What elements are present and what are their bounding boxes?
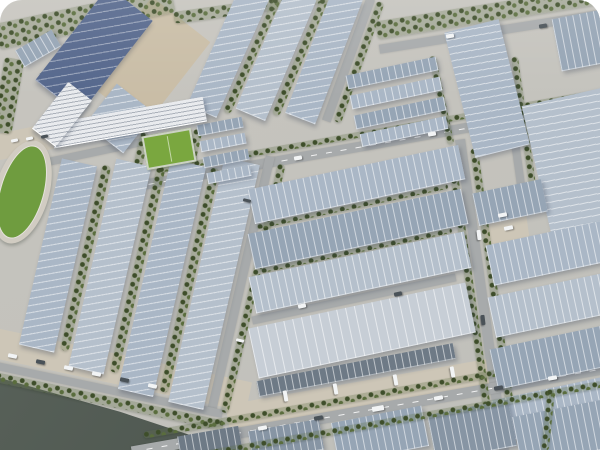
trees-left-edge xyxy=(0,56,24,133)
car xyxy=(25,136,32,140)
field-center-line xyxy=(167,136,172,161)
car xyxy=(539,23,548,28)
hall-right-0 xyxy=(472,179,547,226)
car xyxy=(10,138,17,142)
aerial-industrial-park-render xyxy=(0,0,600,450)
hall-topright-big xyxy=(521,87,600,239)
car xyxy=(40,134,47,138)
